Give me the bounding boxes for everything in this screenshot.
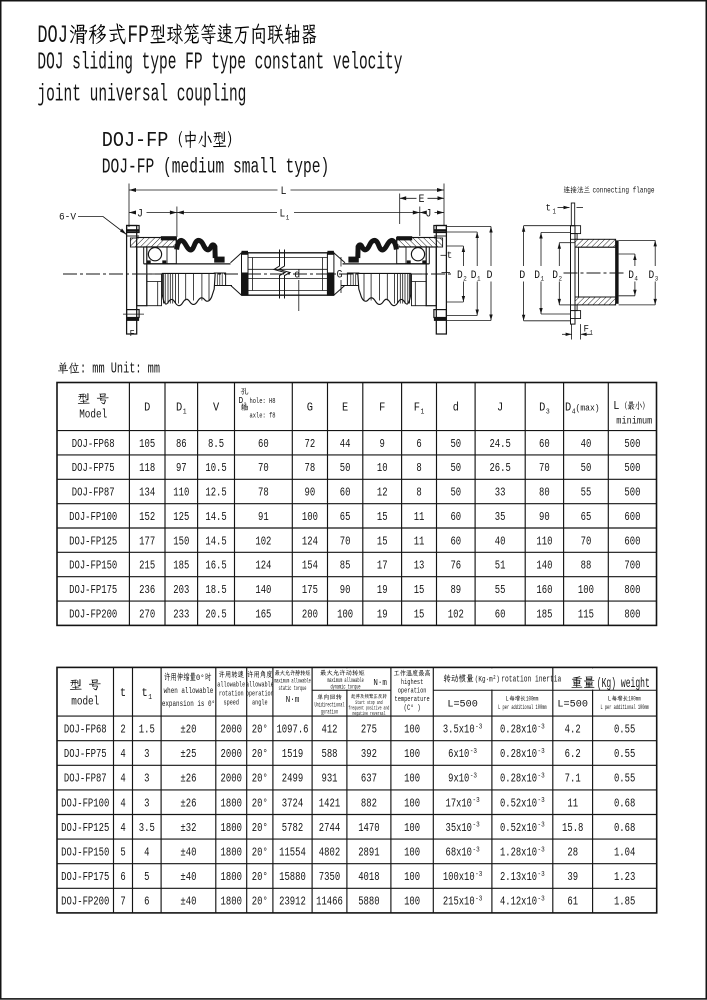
svg-text:F: F <box>379 401 385 415</box>
svg-text:20°: 20° <box>252 773 268 786</box>
svg-text:60: 60 <box>450 535 461 548</box>
svg-text:270: 270 <box>139 608 155 621</box>
svg-text:J: J <box>497 401 503 415</box>
svg-text:4: 4 <box>634 276 638 284</box>
svg-text:1470: 1470 <box>358 822 379 835</box>
svg-text:L per additional 100mm: L per additional 100mm <box>600 704 648 711</box>
svg-text:2499: 2499 <box>282 773 303 786</box>
svg-text:100mm: 100mm <box>526 696 539 703</box>
svg-text:15: 15 <box>414 608 425 621</box>
svg-text:±40: ±40 <box>180 847 196 860</box>
svg-text:19: 19 <box>377 608 388 621</box>
svg-text:DOJ-FP150: DOJ-FP150 <box>69 560 117 573</box>
svg-text:78: 78 <box>258 487 269 500</box>
svg-text:Model: Model <box>79 409 107 422</box>
svg-text:5: 5 <box>144 871 149 884</box>
svg-text:d: d <box>453 401 459 415</box>
svg-text:20°: 20° <box>252 847 268 860</box>
svg-text:1: 1 <box>183 408 187 416</box>
svg-text:4.12x10: 4.12x10 <box>500 896 537 909</box>
svg-text:185: 185 <box>536 608 552 621</box>
svg-text:85: 85 <box>340 560 351 573</box>
svg-text:17x10: 17x10 <box>446 797 473 810</box>
svg-text:125: 125 <box>173 511 189 524</box>
svg-text:100: 100 <box>302 511 318 524</box>
svg-text:1800: 1800 <box>221 822 242 835</box>
svg-text:23912: 23912 <box>279 896 306 909</box>
svg-text:3.5: 3.5 <box>139 822 155 835</box>
svg-text:17: 17 <box>377 560 388 573</box>
svg-text:175: 175 <box>302 584 318 597</box>
svg-text:70: 70 <box>340 535 351 548</box>
svg-text:0.28x10: 0.28x10 <box>500 724 537 737</box>
svg-text:t: t <box>120 686 126 700</box>
svg-text:233: 233 <box>173 608 189 621</box>
svg-text:1097.6: 1097.6 <box>276 724 308 737</box>
svg-text:2000: 2000 <box>221 773 242 786</box>
svg-text:joint universal coupling: joint universal coupling <box>37 82 246 109</box>
svg-text:DOJ-FP125: DOJ-FP125 <box>61 822 109 835</box>
svg-text:1519: 1519 <box>282 748 303 761</box>
svg-text:DOJ sliding type FP type const: DOJ sliding type FP type constant veloci… <box>37 50 402 77</box>
svg-text:60: 60 <box>450 511 461 524</box>
svg-text:12.5: 12.5 <box>205 487 226 500</box>
svg-text:11: 11 <box>414 511 425 524</box>
svg-text:L: L <box>280 209 286 221</box>
svg-text:-3: -3 <box>470 748 477 756</box>
svg-text:1800: 1800 <box>221 871 242 884</box>
svg-text:44: 44 <box>340 438 351 451</box>
svg-text:DOJ-FP150: DOJ-FP150 <box>61 847 109 860</box>
svg-text:2.13x10: 2.13x10 <box>500 871 537 884</box>
svg-text:E: E <box>342 401 348 415</box>
svg-text:14.5: 14.5 <box>205 535 226 548</box>
svg-text:20°: 20° <box>252 822 268 835</box>
svg-text:40: 40 <box>495 535 506 548</box>
svg-text:3: 3 <box>144 748 149 761</box>
svg-text:2: 2 <box>463 276 467 284</box>
svg-text:DOJ: DOJ <box>37 21 68 50</box>
svg-text:operation: operation <box>398 688 427 696</box>
svg-text:DOJ-FP (medium small type): DOJ-FP (medium small type) <box>102 156 329 180</box>
svg-text:177: 177 <box>139 535 155 548</box>
svg-text:maximum allowable: maximum allowable <box>274 678 311 685</box>
svg-text:0.52x10: 0.52x10 <box>500 822 537 835</box>
svg-text:L=500: L=500 <box>447 700 478 711</box>
svg-text:61: 61 <box>567 896 578 909</box>
svg-text:50: 50 <box>340 462 351 475</box>
svg-text:60: 60 <box>340 487 351 500</box>
svg-text:-3: -3 <box>538 748 545 756</box>
svg-text:L=500: L=500 <box>557 700 588 711</box>
svg-text:D: D <box>649 270 655 282</box>
svg-text:26.5: 26.5 <box>489 462 510 475</box>
svg-text:20°: 20° <box>252 871 268 884</box>
svg-text:d: d <box>294 270 300 282</box>
svg-text:89: 89 <box>450 584 461 597</box>
svg-text:35: 35 <box>495 511 506 524</box>
svg-text:-3: -3 <box>538 723 545 731</box>
svg-text:86: 86 <box>176 438 187 451</box>
svg-text:J: J <box>137 209 143 221</box>
svg-text:-3: -3 <box>472 797 479 805</box>
svg-text:3: 3 <box>144 797 149 810</box>
svg-text:105: 105 <box>139 438 155 451</box>
svg-text:rotation: rotation <box>219 691 244 699</box>
svg-text:-3: -3 <box>538 846 545 854</box>
svg-text:(Kg·m²): (Kg·m²) <box>475 675 500 685</box>
svg-text:1: 1 <box>541 276 545 284</box>
svg-text:3: 3 <box>655 276 659 284</box>
svg-text:8: 8 <box>416 462 421 475</box>
svg-text:102: 102 <box>255 535 271 548</box>
svg-text:15.8: 15.8 <box>562 822 583 835</box>
svg-text:4: 4 <box>120 797 125 810</box>
svg-text:1.5: 1.5 <box>139 724 155 737</box>
svg-text:78: 78 <box>305 462 316 475</box>
svg-text:1421: 1421 <box>319 797 340 810</box>
svg-text:1800: 1800 <box>221 847 242 860</box>
svg-text:DOJ-FP75: DOJ-FP75 <box>64 748 107 761</box>
svg-text:4802: 4802 <box>319 847 340 860</box>
svg-text:70: 70 <box>258 462 269 475</box>
svg-text:600: 600 <box>624 535 640 548</box>
svg-text:215: 215 <box>139 560 155 573</box>
svg-text:637: 637 <box>361 773 377 786</box>
svg-text:0.28x10: 0.28x10 <box>500 748 537 761</box>
svg-text:39: 39 <box>567 871 578 884</box>
svg-text:33: 33 <box>495 487 506 500</box>
svg-text:9x10: 9x10 <box>448 773 469 786</box>
svg-text:L: L <box>506 696 509 703</box>
svg-text:70: 70 <box>539 462 550 475</box>
svg-text:412: 412 <box>321 724 337 737</box>
svg-text:6: 6 <box>416 438 421 451</box>
svg-text:DOJ-FP87: DOJ-FP87 <box>72 487 115 500</box>
svg-text:118: 118 <box>139 462 155 475</box>
svg-text:G: G <box>307 401 313 415</box>
svg-text:t: t <box>447 250 453 262</box>
svg-text:D: D <box>457 270 463 282</box>
svg-text:10.5: 10.5 <box>205 462 226 475</box>
svg-text:D: D <box>519 270 525 282</box>
svg-text:DOJ-FP175: DOJ-FP175 <box>69 584 117 597</box>
svg-text:14.5: 14.5 <box>205 511 226 524</box>
svg-text:140: 140 <box>536 560 552 573</box>
svg-text:110: 110 <box>536 535 552 548</box>
svg-text:DOJ-FP87: DOJ-FP87 <box>64 773 107 786</box>
svg-text:expansion is 0°: expansion is 0° <box>162 699 215 709</box>
svg-text:100x10: 100x10 <box>443 871 475 884</box>
svg-text:9: 9 <box>380 438 385 451</box>
svg-text:4.2: 4.2 <box>565 724 581 737</box>
svg-text:±20: ±20 <box>180 724 196 737</box>
svg-text:1.23: 1.23 <box>614 871 635 884</box>
svg-text:D: D <box>487 270 493 282</box>
svg-text:15: 15 <box>377 511 388 524</box>
svg-text:134: 134 <box>139 487 155 500</box>
svg-text:when allowable: when allowable <box>164 686 214 696</box>
svg-text:2891: 2891 <box>358 847 379 860</box>
svg-text:E: E <box>419 194 425 206</box>
svg-text:20.5: 20.5 <box>205 608 226 621</box>
svg-text:axle: f8: axle: f8 <box>250 413 276 421</box>
svg-text:±40: ±40 <box>180 896 196 909</box>
svg-text:1: 1 <box>420 408 424 416</box>
svg-text:100: 100 <box>578 584 594 597</box>
svg-text:588: 588 <box>321 748 337 761</box>
svg-text:G: G <box>337 270 343 282</box>
svg-text:50: 50 <box>450 438 461 451</box>
svg-text:100: 100 <box>404 773 420 786</box>
svg-text:L: L <box>281 186 287 198</box>
svg-text:110: 110 <box>173 487 189 500</box>
svg-text:5782: 5782 <box>282 822 303 835</box>
svg-text:7.1: 7.1 <box>565 773 581 786</box>
svg-text:3.5x10: 3.5x10 <box>443 724 475 737</box>
svg-text:185: 185 <box>173 560 189 573</box>
svg-text:11554: 11554 <box>279 847 306 860</box>
svg-text:2000: 2000 <box>221 724 242 737</box>
svg-text:12: 12 <box>377 487 388 500</box>
svg-text:gyration: gyration <box>321 709 338 716</box>
svg-text:100: 100 <box>404 871 420 884</box>
svg-text:392: 392 <box>361 748 377 761</box>
svg-text:16.5: 16.5 <box>205 560 226 573</box>
svg-text:allowable: allowable <box>217 682 245 690</box>
svg-text:FP: FP <box>127 21 148 50</box>
svg-text:100: 100 <box>404 822 420 835</box>
svg-text:154: 154 <box>302 560 318 573</box>
svg-text:4: 4 <box>144 847 149 860</box>
svg-text:80: 80 <box>539 487 550 500</box>
svg-text:0.55: 0.55 <box>614 773 635 786</box>
svg-text:51: 51 <box>495 560 506 573</box>
svg-text:rotation inertia: rotation inertia <box>501 674 561 685</box>
svg-text:700: 700 <box>624 560 640 573</box>
svg-text:±40: ±40 <box>180 871 196 884</box>
svg-text:90: 90 <box>305 487 316 500</box>
svg-text:negative reversal: negative reversal <box>352 711 385 717</box>
svg-text:(max): (max) <box>576 403 600 414</box>
svg-text:65: 65 <box>581 511 592 524</box>
svg-text:±26: ±26 <box>180 797 196 810</box>
svg-text:speed: speed <box>224 700 240 708</box>
svg-text:DOJ-FP: DOJ-FP <box>102 130 169 153</box>
svg-text:20°: 20° <box>252 748 268 761</box>
svg-text:60: 60 <box>258 438 269 451</box>
svg-text:72: 72 <box>305 438 316 451</box>
svg-text:0.52x10: 0.52x10 <box>500 797 537 810</box>
svg-text:50: 50 <box>450 462 461 475</box>
svg-text:100: 100 <box>404 748 420 761</box>
svg-text:20°: 20° <box>252 896 268 909</box>
svg-text:20°: 20° <box>252 797 268 810</box>
svg-text:2744: 2744 <box>319 822 340 835</box>
svg-text:D: D <box>539 401 545 415</box>
svg-text:215x10: 215x10 <box>443 896 475 909</box>
svg-text:1.28x10: 1.28x10 <box>500 847 537 860</box>
svg-text:15: 15 <box>414 584 425 597</box>
svg-text:D: D <box>144 401 150 415</box>
svg-text:2: 2 <box>559 276 563 284</box>
svg-text:90: 90 <box>340 584 351 597</box>
svg-text:DOJ-FP200: DOJ-FP200 <box>69 608 117 621</box>
svg-text:DOJ-FP68: DOJ-FP68 <box>64 724 107 737</box>
svg-text:28: 28 <box>567 847 578 860</box>
svg-text:1: 1 <box>589 329 592 336</box>
svg-text:D: D <box>534 270 540 282</box>
svg-text:t: t <box>142 686 148 700</box>
svg-text:2: 2 <box>120 724 125 737</box>
svg-text:500: 500 <box>624 462 640 475</box>
svg-text:(C° ): (C° ) <box>404 704 421 713</box>
svg-text:0.68: 0.68 <box>614 822 635 835</box>
svg-text:931: 931 <box>321 773 337 786</box>
svg-text:model: model <box>71 696 99 709</box>
svg-text:1: 1 <box>286 214 290 222</box>
svg-text:angle: angle <box>252 700 267 708</box>
svg-text:6.2: 6.2 <box>565 748 581 761</box>
svg-text:50: 50 <box>581 462 592 475</box>
svg-text:35x10: 35x10 <box>446 822 473 835</box>
svg-text:140: 140 <box>255 584 271 597</box>
svg-text:1: 1 <box>477 276 481 284</box>
svg-text:91: 91 <box>258 511 269 524</box>
svg-text:3: 3 <box>144 773 149 786</box>
svg-text:1.04: 1.04 <box>614 847 635 860</box>
svg-text:500: 500 <box>624 487 640 500</box>
svg-text:±32: ±32 <box>180 822 196 835</box>
svg-text:115: 115 <box>578 608 594 621</box>
svg-text:hole: H8: hole: H8 <box>250 398 276 406</box>
svg-text:DOJ-FP125: DOJ-FP125 <box>69 535 117 548</box>
svg-text:55: 55 <box>495 584 506 597</box>
svg-text:4: 4 <box>120 822 125 835</box>
svg-text:0.68: 0.68 <box>614 797 635 810</box>
svg-text:165: 165 <box>255 608 271 621</box>
svg-text:7350: 7350 <box>319 871 340 884</box>
svg-text:6x10: 6x10 <box>448 748 469 761</box>
svg-text:1: 1 <box>148 694 152 702</box>
svg-text:6: 6 <box>120 871 125 884</box>
svg-text:minimum: minimum <box>616 416 652 428</box>
svg-text:800: 800 <box>624 584 640 597</box>
svg-text:V: V <box>213 401 220 415</box>
svg-text:static torque: static torque <box>279 685 307 692</box>
svg-text:100: 100 <box>404 724 420 737</box>
svg-text:124: 124 <box>302 535 318 548</box>
svg-text:97: 97 <box>176 462 187 475</box>
svg-text:-3: -3 <box>538 871 545 879</box>
svg-text:1800: 1800 <box>221 797 242 810</box>
svg-text:J: J <box>426 209 432 221</box>
svg-text:5880: 5880 <box>358 896 379 909</box>
svg-text:DOJ-FP200: DOJ-FP200 <box>61 896 109 909</box>
svg-text:15880: 15880 <box>279 871 306 884</box>
svg-text:15: 15 <box>377 535 388 548</box>
svg-text:: mm Unit: mm: : mm Unit: mm <box>80 361 160 378</box>
svg-text:3: 3 <box>546 408 550 416</box>
svg-text:-3: -3 <box>470 773 477 781</box>
svg-text:4: 4 <box>120 748 125 761</box>
svg-text:-3: -3 <box>472 846 479 854</box>
svg-text:10: 10 <box>377 462 388 475</box>
svg-text:-3: -3 <box>475 871 482 879</box>
svg-text:-3: -3 <box>475 723 482 731</box>
svg-text:600: 600 <box>624 511 640 524</box>
svg-text:0.55: 0.55 <box>614 724 635 737</box>
svg-text:Unidirectional: Unidirectional <box>314 702 344 709</box>
svg-text:DOJ-FP75: DOJ-FP75 <box>72 462 115 475</box>
svg-text:L: L <box>608 696 611 703</box>
svg-text:100mm: 100mm <box>628 696 641 703</box>
svg-text:70: 70 <box>581 535 592 548</box>
svg-text:8.5: 8.5 <box>208 438 224 451</box>
svg-text:D: D <box>628 270 634 282</box>
svg-text:-3: -3 <box>538 822 545 830</box>
svg-text:0.28x10: 0.28x10 <box>500 773 537 786</box>
svg-text:100: 100 <box>337 608 353 621</box>
svg-text:3724: 3724 <box>282 797 303 810</box>
svg-text:0°: 0° <box>196 673 205 683</box>
svg-text:D: D <box>565 401 571 415</box>
svg-text:124: 124 <box>255 560 271 573</box>
svg-text:11466: 11466 <box>316 896 343 909</box>
svg-text:operation: operation <box>246 691 274 699</box>
svg-text:55: 55 <box>581 487 592 500</box>
svg-text:highest: highest <box>401 679 423 687</box>
svg-text:4018: 4018 <box>358 871 379 884</box>
svg-text:150: 150 <box>173 535 189 548</box>
svg-text:11: 11 <box>567 797 578 810</box>
svg-text:-3: -3 <box>538 896 545 904</box>
svg-text:allowable: allowable <box>246 682 274 690</box>
svg-text:68x10: 68x10 <box>446 847 473 860</box>
svg-text:(Kg) weight: (Kg) weight <box>597 677 650 692</box>
svg-text:D: D <box>176 401 182 415</box>
svg-text:D: D <box>471 270 477 282</box>
svg-text:-3: -3 <box>538 797 545 805</box>
svg-text:DOJ-FP68: DOJ-FP68 <box>72 438 115 451</box>
svg-text:1800: 1800 <box>221 896 242 909</box>
svg-text:D: D <box>552 270 558 282</box>
svg-text:100: 100 <box>404 847 420 860</box>
svg-text:800: 800 <box>624 608 640 621</box>
svg-text:DOJ-FP100: DOJ-FP100 <box>69 511 117 524</box>
svg-text:-3: -3 <box>475 896 482 904</box>
svg-text:-3: -3 <box>538 773 545 781</box>
svg-text:6: 6 <box>144 896 149 909</box>
svg-text:2000: 2000 <box>221 748 242 761</box>
svg-text:60: 60 <box>539 438 550 451</box>
svg-text:connecting flange: connecting flange <box>593 186 655 196</box>
svg-text:20°: 20° <box>252 724 268 737</box>
svg-text:88: 88 <box>581 560 592 573</box>
svg-text:200: 200 <box>302 608 318 621</box>
svg-text:temperature: temperature <box>395 696 430 704</box>
svg-text:DOJ-FP100: DOJ-FP100 <box>61 797 109 810</box>
svg-text:±25: ±25 <box>180 748 196 761</box>
svg-text:11: 11 <box>414 535 425 548</box>
svg-text:6-V: 6-V <box>59 212 77 224</box>
svg-text:dynamic torque: dynamic torque <box>330 684 360 691</box>
svg-text:t: t <box>546 203 552 215</box>
svg-text:DOJ-FP175: DOJ-FP175 <box>61 871 109 884</box>
svg-text:100: 100 <box>404 896 420 909</box>
svg-text:N·m: N·m <box>286 695 300 705</box>
svg-text:60: 60 <box>495 608 506 621</box>
